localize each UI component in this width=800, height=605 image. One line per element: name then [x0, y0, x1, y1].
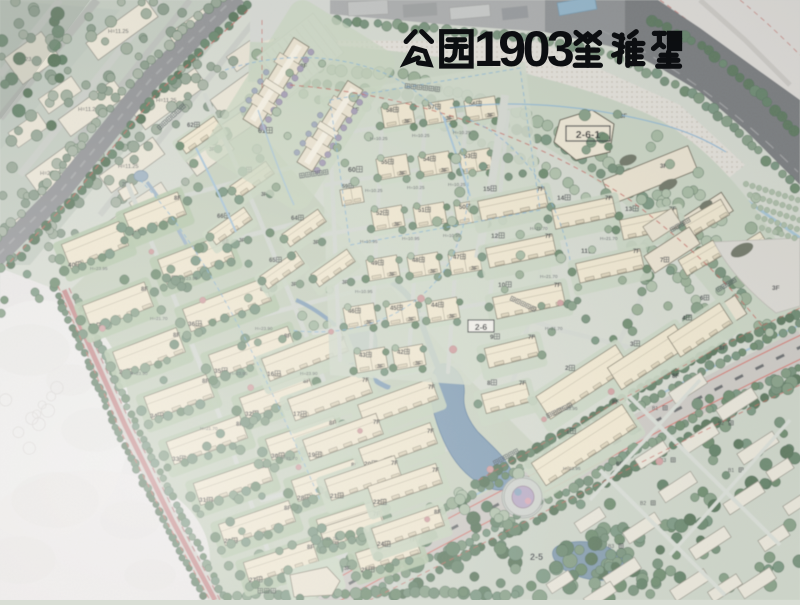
svg-text:1903: 1903	[474, 21, 573, 77]
